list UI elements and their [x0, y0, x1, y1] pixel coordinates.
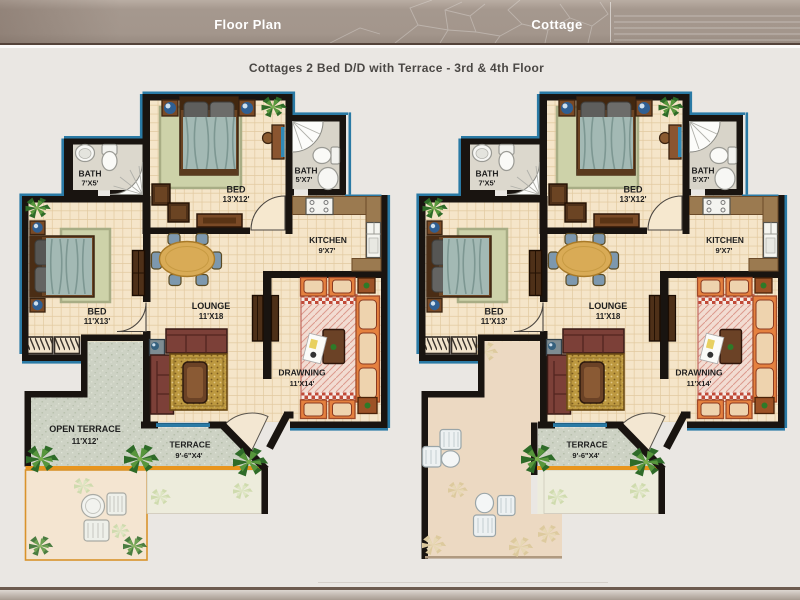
svg-text:OPEN TERRACE: OPEN TERRACE	[49, 424, 121, 434]
svg-text:11'X12': 11'X12'	[72, 437, 99, 446]
